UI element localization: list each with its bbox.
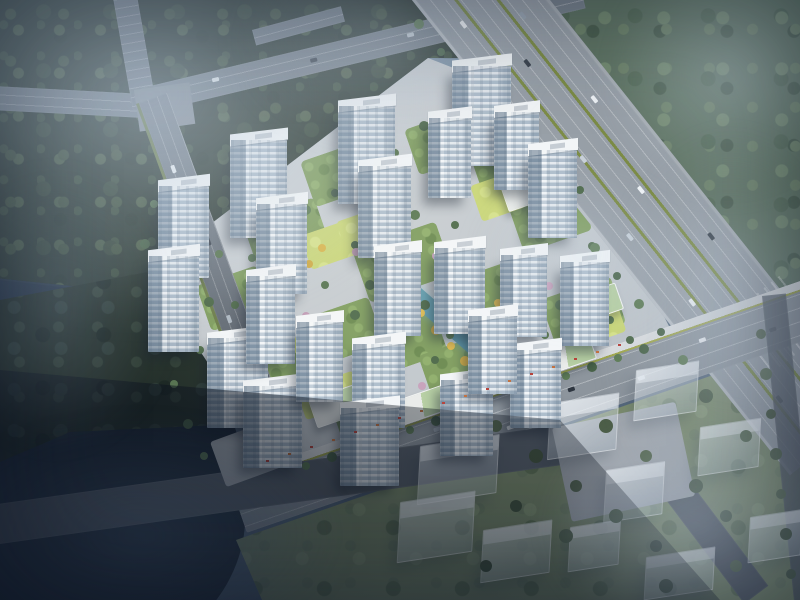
aerial-rendering — [0, 0, 800, 600]
vignette-overlay — [0, 0, 800, 600]
